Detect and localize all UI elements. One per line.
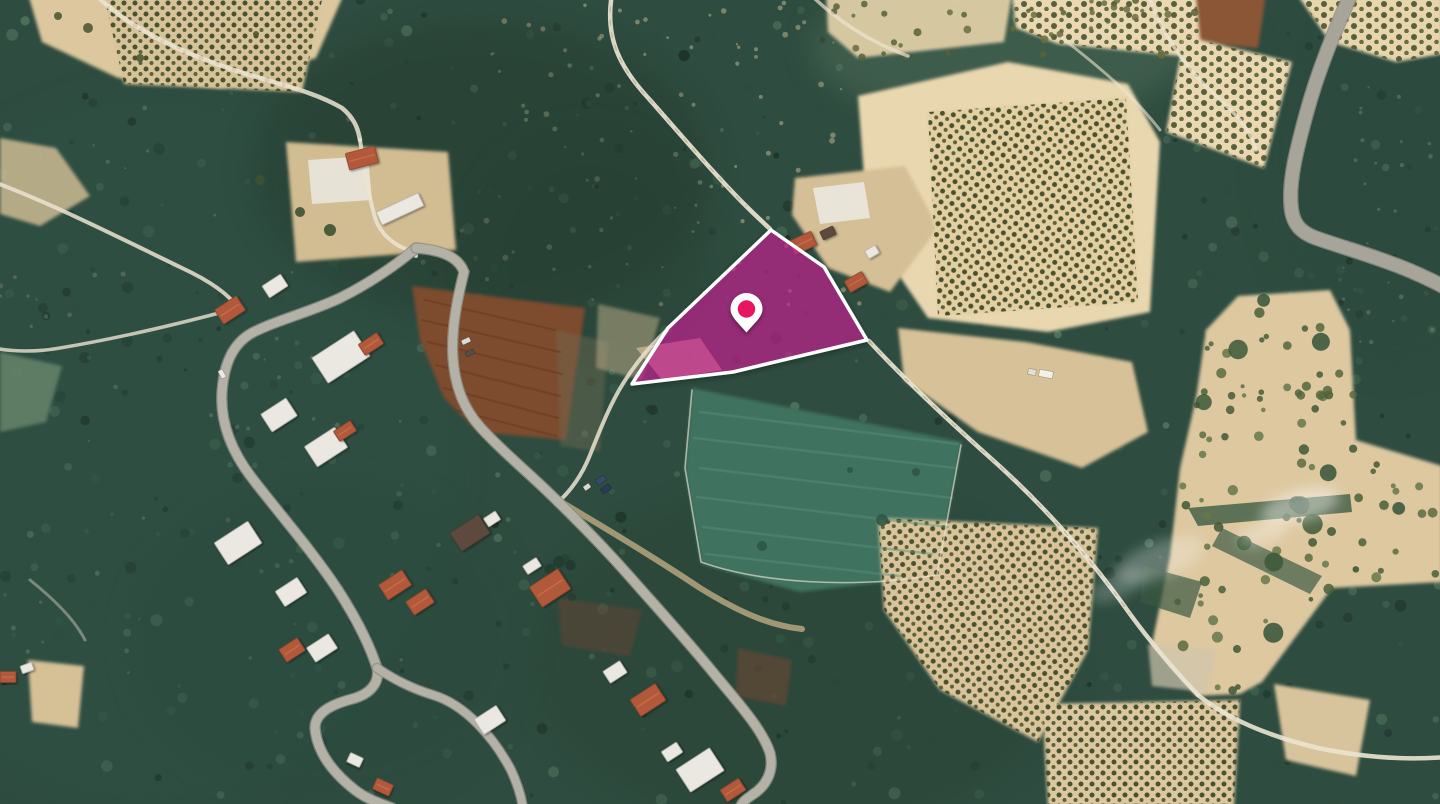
map-viewport[interactable]	[0, 0, 1440, 804]
satellite-map	[0, 0, 1440, 804]
location-pin-dot	[738, 300, 755, 317]
